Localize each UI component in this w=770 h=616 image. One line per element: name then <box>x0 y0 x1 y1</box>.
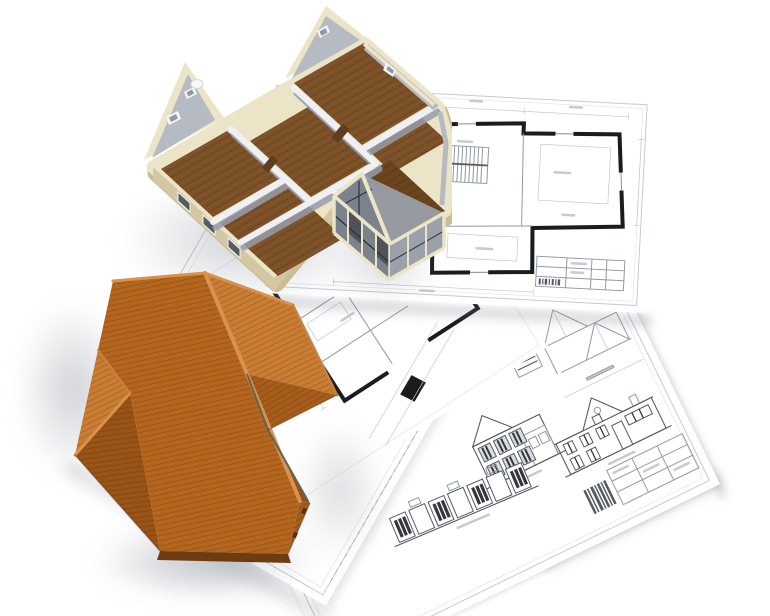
elevation-windows <box>558 393 661 472</box>
roof-model <box>55 256 355 576</box>
title-block <box>535 256 624 291</box>
barcode-mark <box>539 278 561 285</box>
oval-vent <box>191 80 203 89</box>
scene <box>0 0 770 616</box>
front-elevation-drawing <box>539 372 675 485</box>
title-block <box>580 434 699 518</box>
barcode-mark <box>583 480 616 514</box>
